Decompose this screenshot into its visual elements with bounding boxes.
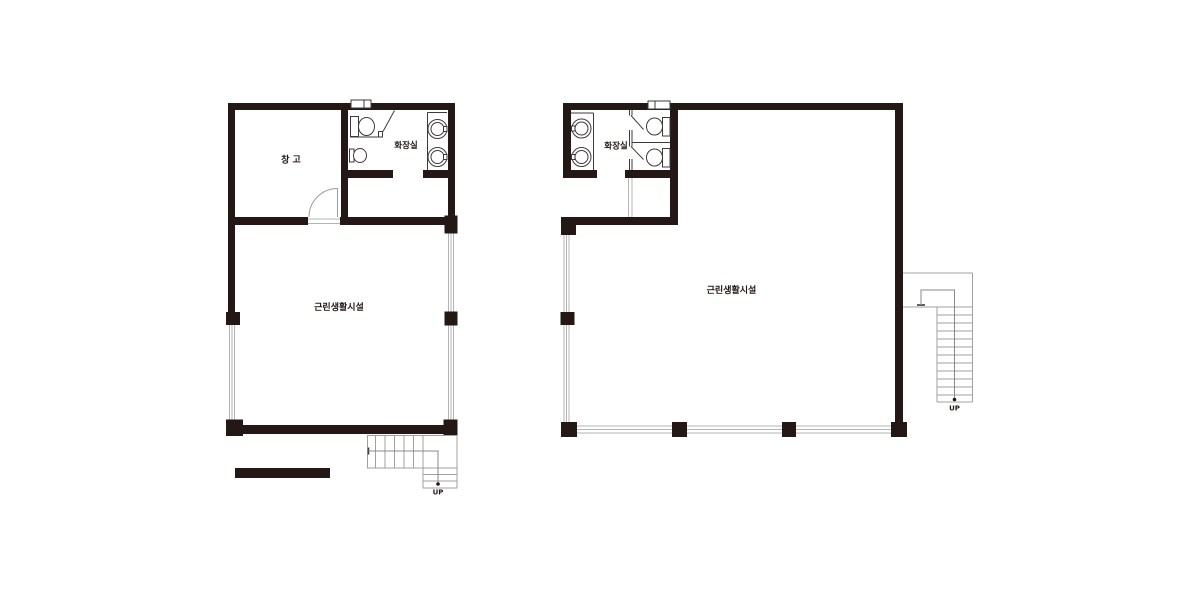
floorplan-drawing: UP 창 고 화장실 근린생활시설 xyxy=(0,0,1200,600)
stair-symbol: UP xyxy=(368,436,458,497)
corner-column xyxy=(561,422,577,437)
restroom-fixtures xyxy=(350,100,448,170)
toilet-symbol xyxy=(647,149,671,168)
column xyxy=(445,312,458,326)
wall-segment xyxy=(228,217,308,225)
door-swing-symbol xyxy=(308,189,340,224)
wall-segment xyxy=(448,103,455,216)
wall-segment xyxy=(348,170,393,178)
restroom-label: 화장실 xyxy=(604,141,628,152)
wash-basin-symbol xyxy=(572,148,592,167)
wall-segment xyxy=(228,425,457,434)
wall-segment xyxy=(895,103,903,434)
second-floor-plan: UP 화장실 근린생활시설 xyxy=(561,101,973,437)
wall-segment xyxy=(563,103,903,110)
stair-symbol: UP xyxy=(903,273,973,413)
corner-column xyxy=(891,422,907,437)
wall-vent-symbol xyxy=(648,101,670,109)
up-label: UP xyxy=(949,405,960,413)
wall-segment xyxy=(228,103,235,313)
toilet-symbol xyxy=(647,118,671,137)
storage-room-label: 창 고 xyxy=(281,154,301,166)
window-symbol xyxy=(230,233,454,420)
walls xyxy=(561,103,908,437)
wall-segment xyxy=(228,103,455,110)
corner-column xyxy=(561,217,576,235)
wall-segment xyxy=(563,170,597,178)
wall-segment xyxy=(340,217,455,225)
wall-vent-symbol xyxy=(351,100,371,108)
hand-sink-symbol xyxy=(350,149,367,163)
window-symbol xyxy=(564,178,895,433)
wash-basin-symbol xyxy=(428,120,447,139)
walls xyxy=(226,103,458,478)
restroom-fixtures xyxy=(571,101,670,170)
floorplan-image: UP 창 고 화장실 근린생활시설 xyxy=(0,0,1200,600)
column xyxy=(561,312,575,325)
main-room-label: 근린생활시설 xyxy=(314,301,364,313)
column xyxy=(782,422,796,437)
wall-segment xyxy=(563,217,678,225)
main-room-label: 근린생활시설 xyxy=(707,284,757,296)
toilet-symbol xyxy=(351,117,375,137)
up-label: UP xyxy=(433,489,444,497)
wall-segment xyxy=(670,110,678,225)
wall-segment xyxy=(563,103,571,178)
wash-basin-symbol xyxy=(428,148,447,167)
wall-segment xyxy=(341,110,348,225)
restroom-label: 화장실 xyxy=(394,140,418,151)
site-wall-bar xyxy=(235,468,330,478)
first-floor-plan: UP 창 고 화장실 근린생활시설 xyxy=(226,100,458,497)
column xyxy=(672,422,687,437)
wash-basin-symbol xyxy=(572,119,592,138)
column xyxy=(226,312,240,325)
